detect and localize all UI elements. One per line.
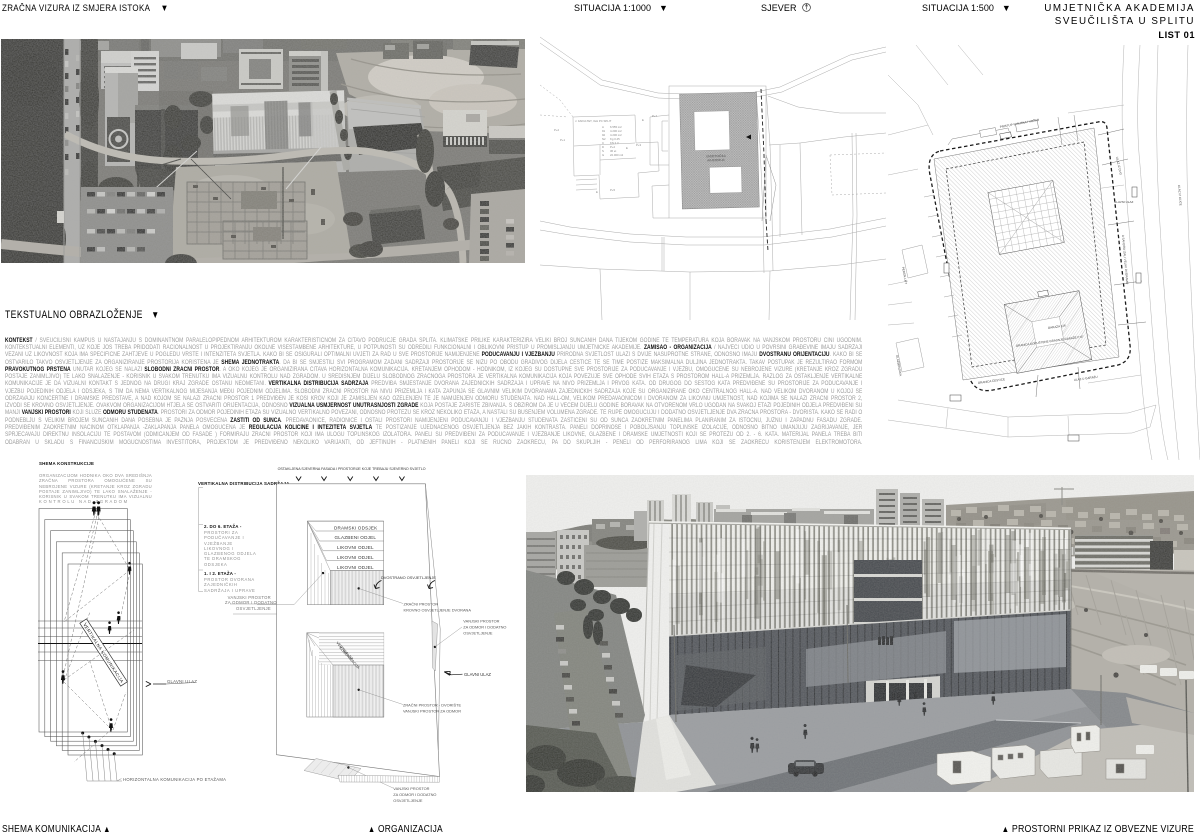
svg-text:ULAZ IZ ULICE: ULAZ IZ ULICE xyxy=(1177,185,1183,206)
svg-text:E: E xyxy=(626,146,628,150)
svg-text:ULAZ IZ DVO: ULAZ IZ DVO xyxy=(1115,156,1123,176)
svg-text:VANJSKI PROSTOR: VANJSKI PROSTOR xyxy=(463,619,499,624)
svg-text:DVOSTRANO OSVJETLJENJE: DVOSTRANO OSVJETLJENJE xyxy=(381,575,436,580)
svg-text:ZA ODMOR I DODATNO: ZA ODMOR I DODATNO xyxy=(463,625,506,630)
svg-text:AKADEMIJA: AKADEMIJA xyxy=(707,158,726,162)
svg-text:LIKOVNI ODJEL: LIKOVNI ODJEL xyxy=(337,565,374,570)
svg-text:GLAZBENJAKA: GLAZBENJAKA xyxy=(895,354,903,376)
svg-text:OSVJETLJENJE: OSVJETLJENJE xyxy=(463,630,493,635)
svg-text:ZA ODMOR I DODATNO: ZA ODMOR I DODATNO xyxy=(393,792,436,797)
svg-text:ZRAČNI PROSTOR: ZRAČNI PROSTOR xyxy=(404,602,439,607)
svg-text:P+3: P+3 xyxy=(636,143,641,147)
svg-text:VANJSKI PROSTOR: VANJSKI PROSTOR xyxy=(393,786,429,791)
svg-text:J. FAKULTET, IGH PC SPLIT: J. FAKULTET, IGH PC SPLIT xyxy=(575,119,612,123)
svg-text:LIKOVNI ODJEL: LIKOVNI ODJEL xyxy=(337,555,374,560)
svg-text:DRAMSKI ODSJEK: DRAMSKI ODSJEK xyxy=(334,525,378,530)
svg-text:OSTAKLJENA SJEVERNA FASADA I P: OSTAKLJENA SJEVERNA FASADA I PROSTORIJE … xyxy=(278,466,426,471)
svg-text:G: G xyxy=(602,153,604,157)
svg-text:ZRAČNI PROSTOR - DVORIŠTE: ZRAČNI PROSTOR - DVORIŠTE xyxy=(403,702,461,707)
svg-text:22.000 m2: 22.000 m2 xyxy=(610,153,624,157)
svg-text:P+2: P+2 xyxy=(554,128,559,132)
svg-text:GLAVNI ULAZ: GLAVNI ULAZ xyxy=(464,672,491,677)
svg-text:OSVJETLJENJE: OSVJETLJENJE xyxy=(393,798,423,803)
svg-text:P+5: P+5 xyxy=(610,188,615,192)
svg-text:GLAZBENI ODJEL: GLAZBENI ODJEL xyxy=(335,535,377,540)
svg-text:E: E xyxy=(596,190,598,194)
svg-text:ULAZ U GARAŽU: ULAZ U GARAŽU xyxy=(1073,374,1097,382)
svg-text:KROVNO OSVJETLJENJE DVORANA: KROVNO OSVJETLJENJE DVORANA xyxy=(404,608,472,613)
svg-text:E: E xyxy=(642,118,644,122)
svg-text:P+7: P+7 xyxy=(652,114,657,118)
svg-text:P+1: P+1 xyxy=(560,138,565,142)
svg-text:VERTIKALNA KOMUNIKACIJA: VERTIKALNA KOMUNIKACIJA xyxy=(82,622,124,684)
svg-text:VANJSKI PROSTOR ZA ODMOR: VANJSKI PROSTOR ZA ODMOR xyxy=(403,708,461,713)
svg-text:GRANICA ČESTICE: GRANICA ČESTICE xyxy=(977,376,1005,385)
svg-text:GLAVNI ULAZ: GLAVNI ULAZ xyxy=(1114,200,1133,204)
svg-text:LIKOVNI ODJEL: LIKOVNI ODJEL xyxy=(337,545,374,550)
